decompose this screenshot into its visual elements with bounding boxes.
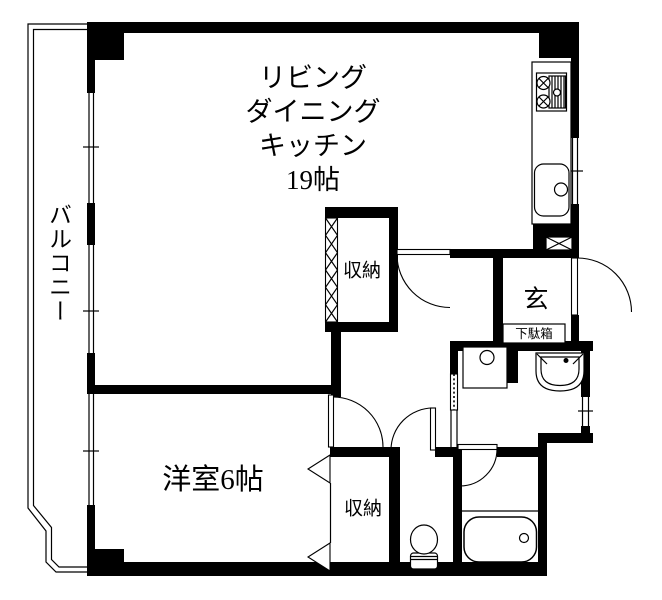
ldk-label-line3: キッチン bbox=[259, 131, 367, 161]
western-room-label: 洋室6帖 bbox=[162, 463, 264, 496]
washroom-accordion-door bbox=[451, 374, 458, 447]
wall-washroom-west-upper bbox=[450, 341, 458, 374]
wall-western-room-top bbox=[87, 385, 333, 394]
wall-entrance-west bbox=[493, 258, 503, 343]
wall-right-upper bbox=[571, 33, 579, 138]
wall-corridor-top bbox=[450, 249, 540, 258]
wall-left-4 bbox=[87, 505, 95, 562]
drain-dot bbox=[520, 534, 529, 543]
wall-top bbox=[87, 22, 579, 33]
entrance-label: 玄 bbox=[523, 286, 548, 314]
bathroom bbox=[462, 511, 538, 562]
western-room-door bbox=[329, 395, 384, 447]
labels: リビング ダイニング キッチン 19帖 バルコニー 洋室6帖 収納 収納 玄 下… bbox=[46, 63, 553, 520]
gas-stove-icon bbox=[537, 73, 567, 111]
door-swing-arc bbox=[397, 255, 450, 308]
wall-step-right bbox=[538, 433, 593, 443]
toilet-door bbox=[391, 408, 436, 450]
door-swing-arc bbox=[460, 449, 497, 486]
bathtub-icon bbox=[464, 517, 537, 562]
washing-machine-pan-icon bbox=[463, 347, 507, 388]
wall-left-3 bbox=[87, 353, 95, 394]
door-leaf bbox=[458, 445, 497, 450]
bathroom-door bbox=[458, 445, 497, 487]
wall-hall-bottom-c bbox=[497, 447, 538, 457]
door-swing-arc bbox=[578, 258, 632, 312]
closet-lower-bifold-door bbox=[308, 455, 331, 571]
kitchen-sink-icon bbox=[535, 164, 570, 216]
shoe-cabinet-label: 下駄箱 bbox=[515, 326, 553, 341]
ldk-label-line1: リビング bbox=[259, 63, 367, 93]
ldk-label-line2: ダイニング bbox=[246, 97, 381, 127]
wall-toilet-east bbox=[453, 447, 462, 576]
toilet-icon bbox=[411, 525, 438, 569]
wall-closet-upper-top bbox=[325, 207, 398, 218]
door-leaf bbox=[397, 250, 450, 255]
wall-closet-upper-east bbox=[389, 207, 398, 332]
window-washroom bbox=[578, 397, 593, 426]
balcony-label: バルコニー bbox=[46, 203, 72, 323]
pipe-space-icon bbox=[546, 237, 572, 250]
kitchen-counter bbox=[532, 62, 571, 224]
door-leaf bbox=[329, 395, 334, 447]
wall-closet-upper-bottom bbox=[325, 322, 398, 332]
floor-plan-page: リビング ダイニング キッチン 19帖 バルコニー 洋室6帖 収納 収納 玄 下… bbox=[0, 0, 662, 600]
wall-washroom-stub bbox=[506, 348, 518, 383]
wall-corridor-west bbox=[331, 332, 341, 397]
washbasin-icon bbox=[536, 353, 584, 391]
door-leaf bbox=[572, 258, 578, 315]
closet-lower-label: 収納 bbox=[344, 498, 382, 520]
floor-plan: リビング ダイニング キッチン 19帖 バルコニー 洋室6帖 収納 収納 玄 下… bbox=[0, 0, 662, 600]
window-balcony-1 bbox=[83, 93, 99, 203]
door-leaf bbox=[431, 408, 436, 450]
wall-below-front-door bbox=[571, 315, 579, 343]
wall-left-1 bbox=[87, 33, 95, 93]
ldk-label-line4: 19帖 bbox=[286, 165, 340, 195]
bifold-triangle-top bbox=[308, 455, 330, 483]
faucet-dot bbox=[564, 358, 569, 363]
door-swing-arc bbox=[391, 408, 433, 450]
ldk-corridor-door bbox=[397, 250, 450, 308]
wall-left-2 bbox=[87, 203, 95, 245]
front-door bbox=[572, 258, 632, 315]
closet-upper-label: 収納 bbox=[343, 260, 381, 282]
window-balcony-3 bbox=[83, 394, 99, 505]
wall-bath-east bbox=[538, 443, 547, 576]
wall-bottom bbox=[88, 562, 547, 576]
door-swing-arc bbox=[333, 397, 383, 447]
closet-upper-accordion-door bbox=[326, 218, 338, 322]
window-balcony-2 bbox=[83, 245, 99, 353]
wall-toilet-west bbox=[389, 447, 400, 576]
